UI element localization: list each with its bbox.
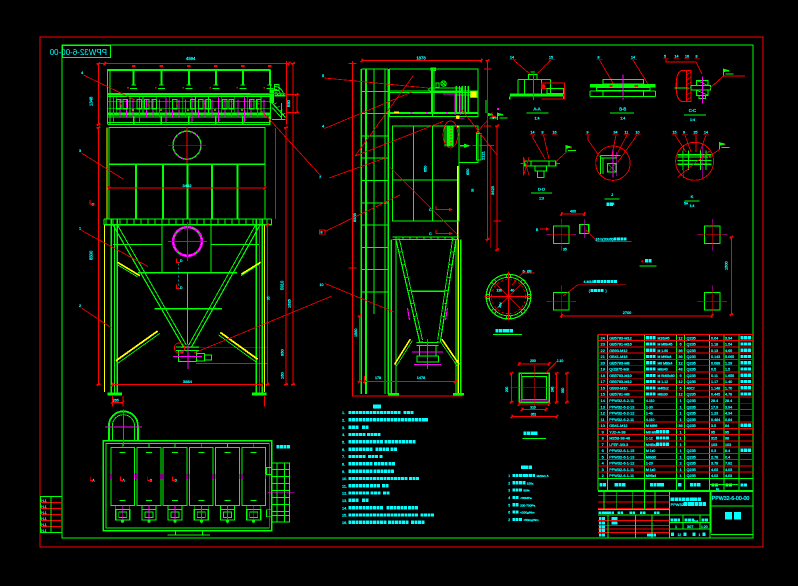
svg-text:14: 14 [510,56,514,60]
svg-text:H-1: H-1 [41,499,47,503]
svg-text:0.11: 0.11 [711,374,718,378]
svg-text:18: 18 [601,373,605,378]
svg-text:3.: 3. [342,426,345,430]
svg-text:1: 1 [508,474,510,478]
svg-text:15: 15 [673,131,677,135]
svg-text:98: 98 [725,437,729,441]
svg-text:1: 1 [699,533,701,537]
svg-text:150x: 150x [527,481,534,485]
svg-text:1:4: 1:4 [690,204,695,208]
svg-text:PPW32-6-2-11: PPW32-6-2-11 [609,399,634,403]
svg-text:35: 35 [267,296,271,300]
svg-text:1: 1 [679,449,681,453]
svg-text:22: 22 [601,348,605,353]
svg-text:1: 1 [679,405,681,409]
svg-text:Q235: Q235 [687,368,696,372]
svg-text:1560: 1560 [354,329,358,337]
svg-text:21: 21 [601,354,605,359]
svg-text:Q235: Q235 [687,380,696,384]
svg-text:GB93-M12: GB93-M12 [609,349,627,353]
svg-text:M Bt4t5x80: M Bt4t5x80 [658,374,675,378]
svg-text:PPW32-6-1-15: PPW32-6-1-15 [609,449,634,453]
svg-text:9: 9 [587,131,589,135]
svg-text:GB41-M16: GB41-M16 [609,355,627,359]
svg-text:690: 690 [286,99,291,107]
svg-text:265: 265 [113,398,119,402]
svg-text:1.17: 1.17 [711,380,718,384]
svg-text:40Cr: 40Cr [687,386,696,390]
svg-text:1-12: 1-12 [646,437,653,441]
svg-text:200-700Pa: 200-700Pa [520,503,535,507]
svg-text:K: K [691,194,694,199]
svg-text:1: 1 [679,468,681,472]
svg-text:<30MPa: <30MPa [520,496,532,500]
svg-text:80%: 80% [523,489,529,493]
svg-text:Q235: Q235 [687,412,696,416]
svg-text:5A: 5A [684,202,689,206]
svg-text:23: 23 [601,342,605,347]
svg-text:1525: 1525 [287,298,292,308]
svg-text:3884: 3884 [183,379,193,384]
svg-text:103: 103 [711,443,717,447]
svg-text:4.78: 4.78 [725,393,732,397]
svg-text:0.13: 0.13 [711,349,718,353]
svg-text:M4t5x2: M4t5x2 [658,386,669,390]
svg-text:Q235: Q235 [687,418,696,422]
svg-text:1500: 1500 [724,261,729,270]
svg-text:4-110: 4-110 [646,399,655,403]
svg-text:315: 315 [711,437,717,441]
svg-text:160: 160 [280,372,285,379]
svg-text:1:20: 1:20 [701,525,708,529]
svg-text:1.70: 1.70 [725,386,732,390]
svg-text:PPW32-6-00-00: PPW32-6-00-00 [49,48,107,57]
svg-text:14.: 14. [342,506,347,510]
svg-text:17.9: 17.9 [711,405,718,409]
svg-text:15.: 15. [342,514,347,518]
svg-text:3625: 3625 [490,185,495,195]
svg-text:8: 8 [602,436,604,441]
svg-text:Q235: Q235 [687,468,696,472]
svg-text:6: 6 [679,343,681,347]
svg-text:8.4: 8.4 [725,449,730,453]
svg-text:3.94: 3.94 [725,336,732,340]
svg-text:LFEF-3/3.3: LFEF-3/3.3 [609,443,628,447]
svg-text:1:4: 1:4 [690,118,695,122]
svg-text:GB41-M12: GB41-M12 [609,424,627,428]
svg-text:4594: 4594 [186,56,196,61]
svg-text:5: 5 [664,55,666,59]
svg-text:PPW32-6-1-11: PPW32-6-1-11 [609,474,634,478]
svg-text:16: 16 [553,131,557,135]
svg-text:12: 12 [678,533,682,537]
svg-text:16.: 16. [342,521,347,525]
svg-text:M 1x0: M 1x0 [646,468,655,472]
svg-text:3: 3 [508,489,510,493]
svg-text:1:4: 1:4 [535,117,540,121]
svg-text:1.5: 1.5 [725,368,730,372]
svg-text:GB5783-M12: GB5783-M12 [609,336,632,340]
svg-text:2: 2 [679,462,681,466]
svg-text:7: 7 [602,442,604,447]
svg-text:8: 8 [542,131,544,135]
svg-text:Q235: Q235 [687,399,696,403]
svg-text:1: 1 [679,412,681,416]
svg-text:M Mt96: M Mt96 [646,424,657,428]
svg-text:5: 5 [322,74,324,78]
svg-text:2700: 2700 [623,311,631,315]
svg-text:4: 4 [508,496,510,500]
svg-text:36: 36 [678,355,682,359]
svg-text:12: 12 [678,336,682,340]
svg-text:12.: 12. [342,492,347,496]
svg-text:0.088: 0.088 [711,361,720,365]
svg-text:1878: 1878 [416,56,426,61]
svg-text:H-1: H-1 [41,517,47,521]
svg-text:<200g/Nm: <200g/Nm [520,511,535,515]
svg-text:M96x4: M96x4 [646,474,656,478]
svg-text:H-1: H-1 [41,511,47,515]
svg-text:1: 1 [675,525,677,529]
svg-text:400: 400 [570,210,576,214]
svg-text:0.04: 0.04 [711,336,718,340]
svg-text:J: J [611,192,613,197]
svg-text:4.03: 4.03 [711,474,718,478]
svg-text:350: 350 [561,387,565,393]
svg-text:200: 200 [530,359,536,363]
svg-text:4.03: 4.03 [711,468,718,472]
svg-text:Q235: Q235 [687,343,696,347]
svg-text:PPW32-6-00-00: PPW32-6-00-00 [712,496,750,502]
svg-text:M20x1.5: M20x1.5 [537,474,549,478]
svg-text:<50mg/Nm: <50mg/Nm [523,518,539,522]
svg-text:5: 5 [508,503,510,507]
svg-text:10: 10 [320,283,324,287]
svg-text:B-B: B-B [619,107,626,112]
svg-text:7.82: 7.82 [725,462,732,466]
svg-text:1: 1 [679,399,681,403]
svg-text:9: 9 [683,131,685,135]
svg-text:240: 240 [551,386,555,392]
svg-text:200: 200 [505,386,509,392]
svg-text:10: 10 [636,131,640,135]
svg-text:1.23: 1.23 [711,412,718,416]
svg-text:6.: 6. [342,448,345,452]
svg-text:1.655: 1.655 [725,374,734,378]
svg-text:12: 12 [678,361,682,365]
svg-text:M8x30: M8x30 [646,455,656,459]
svg-text:Q235: Q235 [687,455,696,459]
svg-text:Q235: Q235 [687,361,696,365]
svg-text:13: 13 [601,404,605,409]
svg-text:PPW32-6-2-12: PPW32-6-2-12 [609,412,634,416]
svg-text:15: 15 [549,56,553,60]
svg-text:6: 6 [679,386,681,390]
svg-text:11: 11 [625,131,629,135]
svg-text:3462: 3462 [183,183,193,188]
svg-text:35: 35 [471,188,475,192]
svg-text:H-1: H-1 [41,523,47,527]
svg-text:15: 15 [601,392,605,397]
svg-text:8: 8 [321,231,323,235]
svg-text:1348: 1348 [89,96,94,106]
svg-text:H-1: H-1 [41,505,47,509]
svg-text:M8x30: M8x30 [658,393,668,397]
svg-text:10.: 10. [342,477,347,481]
svg-text:Q235: Q235 [687,349,696,353]
svg-text:0.84: 0.84 [725,418,732,422]
svg-text:2: 2 [79,304,81,308]
svg-text:1.29: 1.29 [725,361,732,365]
svg-text:0.143: 0.143 [711,355,720,359]
svg-text:2121: 2121 [480,150,485,160]
svg-text:36: 36 [678,349,682,353]
svg-text:25: 25 [694,131,698,135]
svg-text:103: 103 [725,443,731,447]
svg-text:3.78: 3.78 [711,462,718,466]
svg-text:3: 3 [602,467,604,472]
svg-text:4: 4 [322,125,324,129]
svg-text:950: 950 [280,349,285,356]
svg-text:2: 2 [508,518,510,522]
svg-text:4.: 4. [342,433,345,437]
svg-text:kg: kg [716,487,720,491]
svg-text:M 1-90: M 1-90 [658,349,669,353]
svg-text:0.5: 0.5 [711,368,716,372]
svg-text:1:3: 1:3 [539,197,544,201]
svg-text:7.: 7. [342,455,345,459]
svg-text:310: 310 [530,405,536,409]
svg-text:Q235: Q235 [687,393,696,397]
svg-text:178: 178 [375,376,381,380]
svg-text:GB5781-M16: GB5781-M16 [609,343,632,347]
svg-text:PPW32-6-2-11: PPW32-6-2-11 [609,418,634,422]
svg-text:): ) [606,289,607,293]
svg-text:C: C [429,232,432,236]
svg-text:GB5781-M8: GB5781-M8 [609,393,629,397]
svg-text:95: 95 [725,430,729,434]
svg-text:GB93-M10: GB93-M10 [609,386,627,390]
svg-text:PPW32-6-1-12: PPW32-6-1-12 [609,462,634,466]
svg-text:2.: 2. [342,419,345,423]
svg-text:28.4: 28.4 [711,399,718,403]
svg-text:4-110: 4-110 [646,418,655,422]
svg-text:5.: 5. [342,440,345,444]
svg-text:5.065: 5.065 [725,355,734,359]
svg-text:J-10: J-10 [557,359,564,363]
svg-text:1.148: 1.148 [711,386,720,390]
svg-text:2.78: 2.78 [711,455,718,459]
svg-text:GB5783-M12: GB5783-M12 [609,380,632,384]
svg-text:17: 17 [601,379,605,384]
svg-text:650: 650 [424,166,428,172]
svg-text:1.18: 1.18 [711,343,718,347]
svg-text:4.34: 4.34 [725,412,732,416]
svg-text:1: 1 [679,437,681,441]
svg-text:1: 1 [679,455,681,459]
svg-text:6: 6 [679,374,681,378]
svg-text:1-20: 1-20 [646,462,653,466]
svg-text:1: 1 [679,443,681,447]
svg-text:8: 8 [598,56,600,60]
svg-text:1: 1 [679,430,681,434]
svg-text:1-4b: 1-4b [646,412,653,416]
svg-text:95: 95 [711,430,715,434]
svg-text:650: 650 [466,169,470,175]
svg-text:2: 2 [508,481,510,485]
svg-text:3.94: 3.94 [725,405,732,409]
svg-text:11.: 11. [342,484,347,488]
svg-text:84: 84 [725,424,729,428]
svg-text:PPW32-6-2-13: PPW32-6-2-13 [609,405,634,409]
svg-text:1.54: 1.54 [725,343,732,347]
svg-text:Q235: Q235 [687,462,696,466]
svg-text:1-30: 1-30 [646,405,653,409]
svg-text:5: 5 [602,454,604,459]
svg-text:34: 34 [614,131,618,135]
svg-text:M 1-12: M 1-12 [658,380,669,384]
svg-text:M8 Mt8x4: M8 Mt8x4 [658,361,673,365]
svg-text:M 1x0: M 1x0 [646,449,655,453]
svg-text:1.: 1. [342,411,345,415]
svg-text:9: 9 [602,429,604,434]
svg-text:M Mt6x45: M Mt6x45 [658,343,673,347]
svg-text:14: 14 [704,131,708,135]
svg-text:13.: 13. [342,499,347,503]
svg-text:0.484: 0.484 [711,418,720,422]
svg-text:4-M16: 4-M16 [584,280,594,284]
svg-text:Q/ZB75-M8: Q/ZB75-M8 [609,368,629,372]
svg-text:351: 351 [531,412,537,416]
svg-text:Q235: Q235 [687,424,696,428]
svg-text:Q235: Q235 [687,474,696,478]
svg-text:GB5783-M10: GB5783-M10 [609,374,632,378]
svg-text:16 b(20b5t): 16 b(20b5t) [596,238,614,242]
svg-text:M4t5x2: M4t5x2 [646,443,657,447]
svg-text:GB5783-M8: GB5783-M8 [609,361,629,365]
svg-text:14: 14 [675,55,679,59]
svg-text:M25B-38-48: M25B-38-48 [609,437,630,441]
svg-text:130: 130 [497,289,503,293]
svg-text:A-A: A-A [534,107,541,112]
svg-text:4.03: 4.03 [725,474,732,478]
svg-text:M8x40: M8x40 [658,368,668,372]
svg-text:11: 11 [601,417,605,422]
svg-text:PPW32-6-1-11: PPW32-6-1-11 [609,468,634,472]
svg-text:Q235: Q235 [687,405,696,409]
svg-text:D-D: D-D [538,187,545,192]
svg-text:14: 14 [631,56,635,60]
svg-text:6: 6 [508,511,510,515]
svg-text:16: 16 [685,55,689,59]
svg-text:12: 12 [678,393,682,397]
svg-text:8.: 8. [342,462,345,466]
svg-text:1:4: 1:4 [620,117,625,121]
svg-text:12: 12 [678,380,682,384]
svg-text:16: 16 [601,385,605,390]
svg-text:6: 6 [602,448,604,453]
svg-text:19: 19 [601,367,605,372]
svg-text:1478: 1478 [417,376,425,380]
svg-text:YJD-A-38: YJD-A-38 [609,430,625,434]
svg-text:Q235: Q235 [687,374,696,378]
svg-text:4.65: 4.65 [725,349,732,353]
svg-text:M M90x4: M M90x4 [658,355,672,359]
svg-text:14: 14 [531,131,535,135]
svg-text:Q235: Q235 [687,355,696,359]
svg-text:40: 40 [511,289,515,293]
svg-text:1: 1 [679,474,681,478]
svg-text:0.445: 0.445 [711,393,720,397]
svg-text:1: 1 [679,418,681,422]
svg-text:3.5: 3.5 [711,424,716,428]
svg-text:PPW32-6-1-13: PPW32-6-1-13 [609,455,634,459]
svg-text:9.: 9. [342,470,345,474]
svg-text:4.03: 4.03 [725,468,732,472]
svg-text:1.40: 1.40 [725,380,732,384]
svg-text:35: 35 [563,248,567,252]
svg-text:36: 36 [678,424,682,428]
svg-text:12: 12 [601,411,605,416]
svg-text:M16x45: M16x45 [658,336,670,340]
svg-text:8500: 8500 [89,250,94,260]
svg-text:3: 3 [79,149,81,153]
svg-text:4: 4 [81,71,83,75]
svg-text:2: 2 [602,473,604,478]
svg-text:1: 1 [79,227,81,231]
svg-text:Q235: Q235 [687,336,696,340]
svg-text:28.4: 28.4 [725,399,732,403]
svg-text:5910: 5910 [280,280,285,290]
svg-text:4: 4 [641,260,643,264]
svg-text:0.3: 0.3 [711,449,716,453]
svg-text:48: 48 [678,368,682,372]
svg-text:0.4: 0.4 [725,455,730,459]
svg-text:H-1: H-1 [41,529,47,533]
svg-text:M8 M9: M8 M9 [646,430,656,434]
svg-text:8: 8 [696,55,698,59]
svg-text:307: 307 [687,525,693,529]
svg-text:Q235: Q235 [687,449,696,453]
svg-text:C-C: C-C [689,108,696,113]
